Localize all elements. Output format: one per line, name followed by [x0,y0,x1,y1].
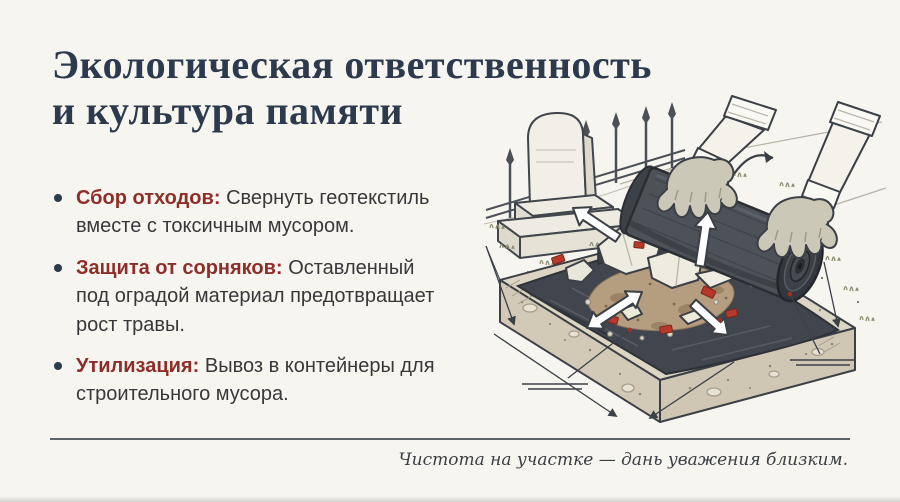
bullet-dot [54,264,62,272]
bullet-label: Утилизация: [76,355,199,377]
title-line-1: Экологическая ответственность [52,42,652,88]
bullet-dot [54,362,62,370]
bullet-list: Сбор отходов:Свернуть геотекстиль вместе… [52,184,444,422]
infographic-card: Экологическая ответственность и культура… [0,0,900,502]
footer-divider [50,438,850,440]
list-item: Утилизация:Вывоз в контейнеры для строит… [52,352,444,409]
right-glove [758,197,837,258]
list-item: Сбор отходов:Свернуть геотекстиль вместе… [52,184,444,241]
right-arm [758,102,880,258]
rotation-arrow [734,151,773,174]
page-bottom-shadow [0,496,900,502]
footer-caption: Чистота на участке — дань уважения близк… [399,450,848,470]
bullet-dot [54,194,62,202]
list-item: Защита от сорняков:Оставленный под оград… [52,254,444,339]
bullet-label: Сбор отходов: [76,187,220,209]
illustration [470,88,890,448]
bullet-label: Защита от сорняков: [76,257,283,279]
